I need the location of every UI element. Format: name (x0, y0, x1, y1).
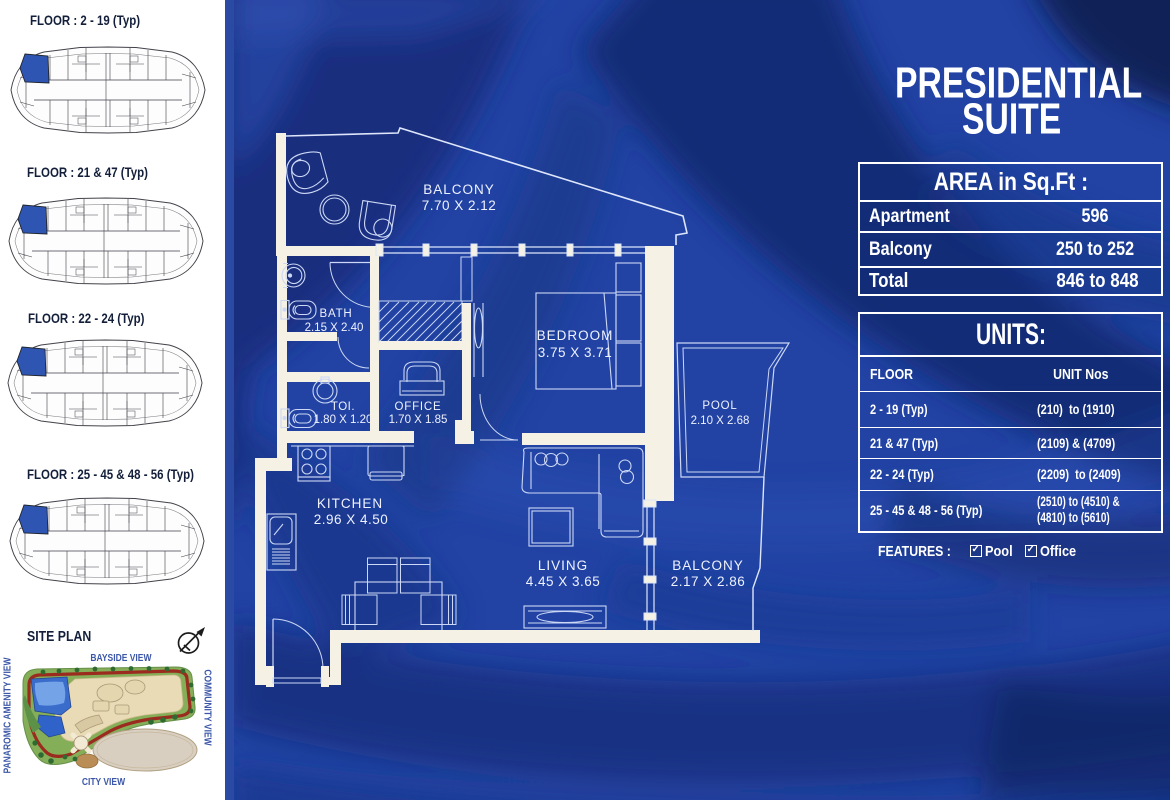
svg-text:LIVING: LIVING (538, 558, 588, 573)
svg-text:1.70 X 1.85: 1.70 X 1.85 (389, 414, 448, 426)
svg-text:KITCHEN: KITCHEN (317, 496, 383, 511)
svg-text:SUITE: SUITE (962, 95, 1061, 143)
svg-text:3.75 X 3.71: 3.75 X 3.71 (538, 345, 613, 360)
svg-text:BATH: BATH (319, 308, 352, 320)
svg-text:2.10 X 2.68: 2.10 X 2.68 (691, 415, 750, 427)
svg-text:TOI.: TOI. (331, 401, 355, 413)
svg-text:OFFICE: OFFICE (395, 401, 442, 413)
svg-text:2.17 X 2.86: 2.17 X 2.86 (671, 574, 746, 589)
svg-text:2.96 X 4.50: 2.96 X 4.50 (314, 512, 389, 527)
svg-text:1.80 X 1.20: 1.80 X 1.20 (314, 414, 373, 426)
svg-text:4.45 X 3.65: 4.45 X 3.65 (526, 574, 601, 589)
svg-text:BEDROOM: BEDROOM (537, 328, 614, 343)
svg-text:7.70 X 2.12: 7.70 X 2.12 (422, 198, 497, 213)
svg-text:BALCONY: BALCONY (672, 558, 744, 573)
svg-text:POOL: POOL (702, 400, 737, 412)
svg-text:BALCONY: BALCONY (423, 182, 495, 197)
